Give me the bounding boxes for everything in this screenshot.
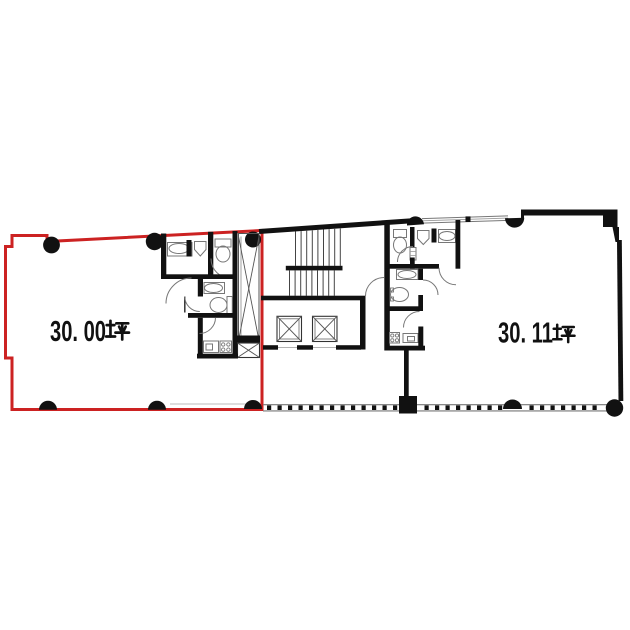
svg-text:30. 11: 30. 11 (498, 318, 553, 350)
svg-text:30. 00: 30. 00 (50, 316, 106, 348)
